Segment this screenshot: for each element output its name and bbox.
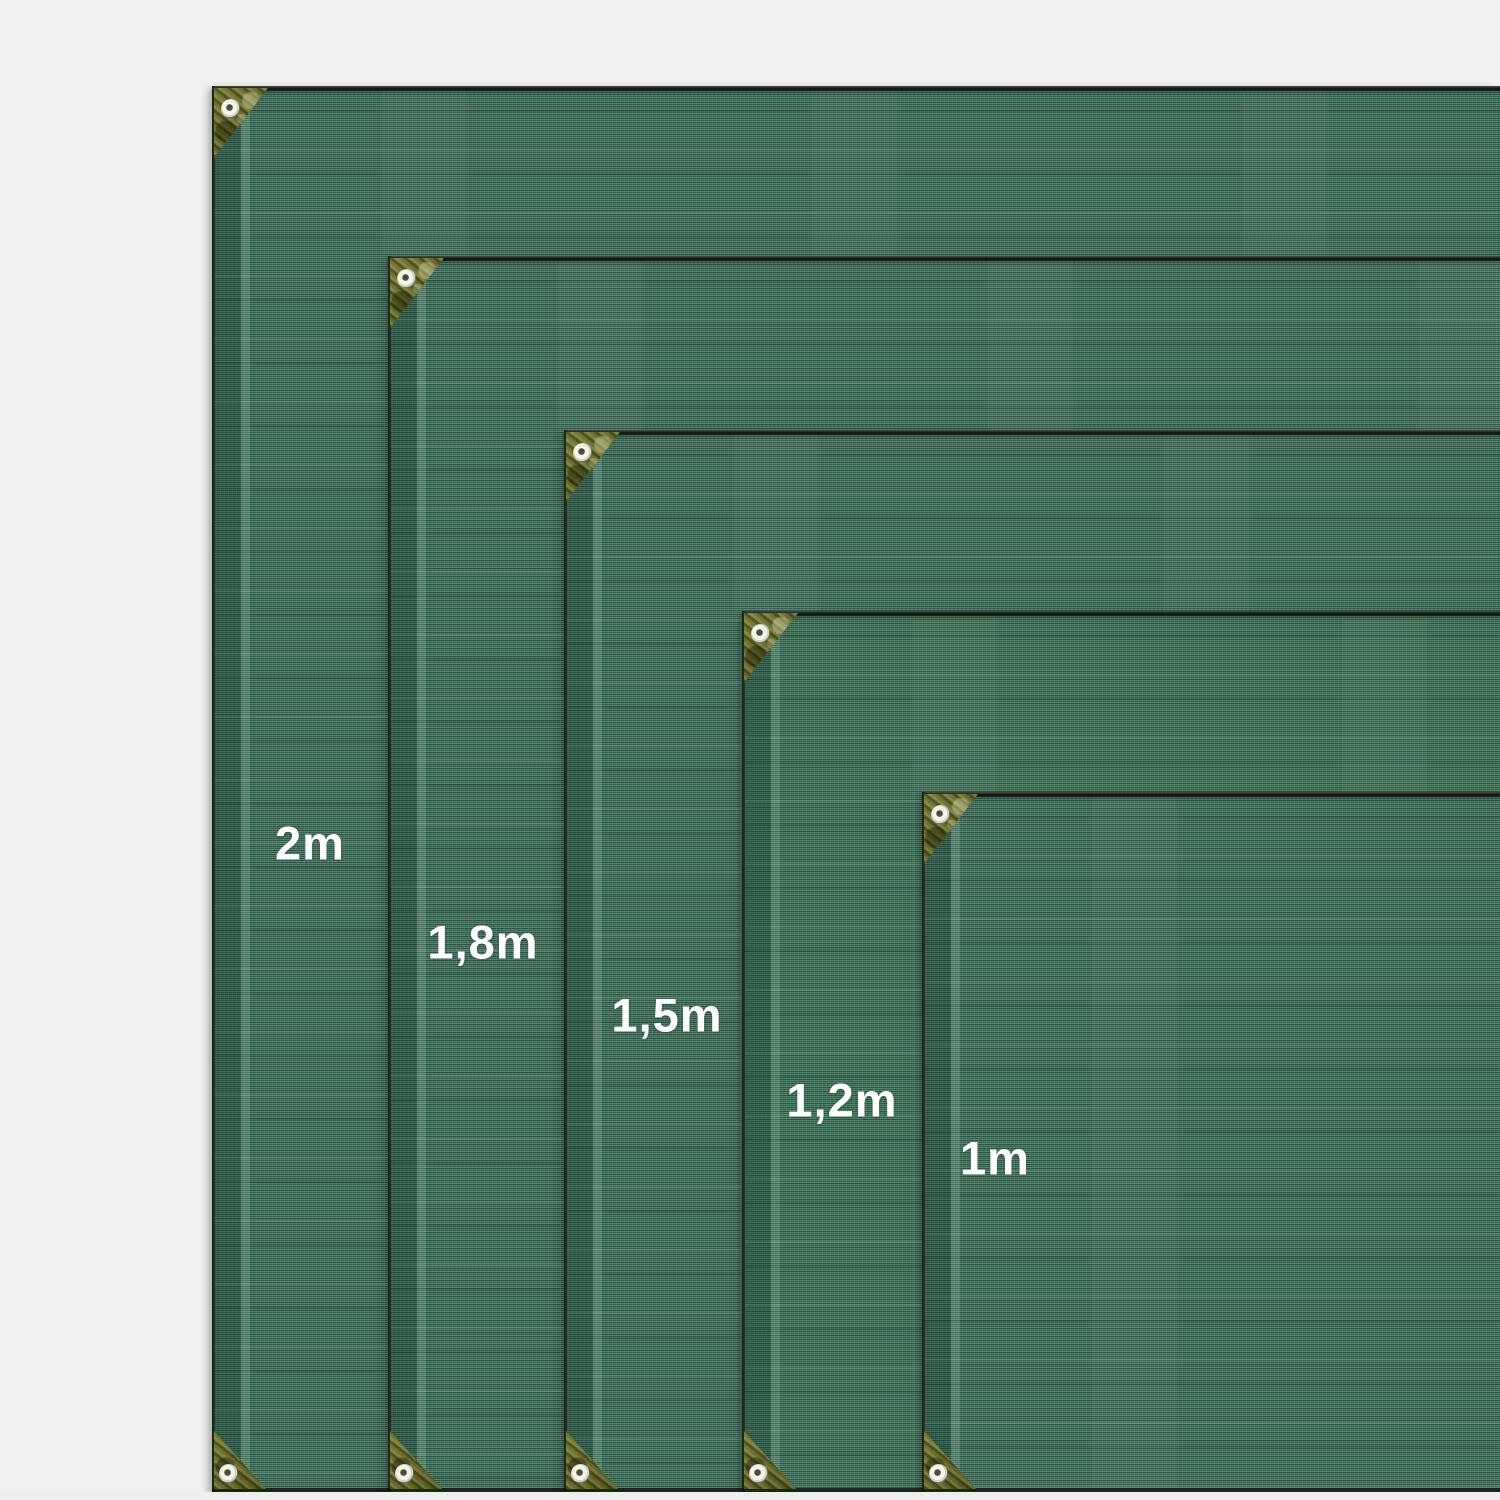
panel-left-hem [567,435,593,1488]
grommet-icon [751,624,770,643]
grommet-icon [749,1464,768,1483]
panel-left-hem [215,91,241,1488]
panel-hem-stitch [771,616,780,1488]
size-label-1m: 1m [960,1131,1030,1186]
grommet-icon [571,1464,590,1483]
product-size-comparison-image: 2m 1,8m 1,5m 1,2m 1m [0,0,1500,1500]
panel-hem-stitch [593,435,602,1488]
size-label-1-8m: 1,8m [427,915,538,970]
grommet-icon [929,1464,948,1483]
grommet-icon [221,99,240,118]
panel-top-hem [742,611,1500,616]
panel-top-hem [564,430,1500,435]
panel-top-hem [388,256,1500,261]
panel-hem-stitch [951,797,960,1488]
grommet-icon [573,443,592,462]
panel-left-hem [745,616,771,1488]
size-label-1-5m: 1,5m [611,988,722,1043]
panel-left-hem [391,261,417,1488]
size-label-2m: 2m [275,816,345,871]
panel-top-hem [922,792,1500,797]
panel-hem-stitch [241,91,250,1488]
size-label-1-2m: 1,2m [786,1073,897,1128]
ground-strip [0,1492,1500,1500]
panel-hem-stitch [417,261,426,1488]
grommet-icon [931,805,950,824]
panel-left-hem [925,797,951,1488]
grommet-icon [395,1464,414,1483]
grommet-icon [219,1464,238,1483]
panel-top-hem [212,86,1500,91]
grommet-icon [397,269,416,288]
